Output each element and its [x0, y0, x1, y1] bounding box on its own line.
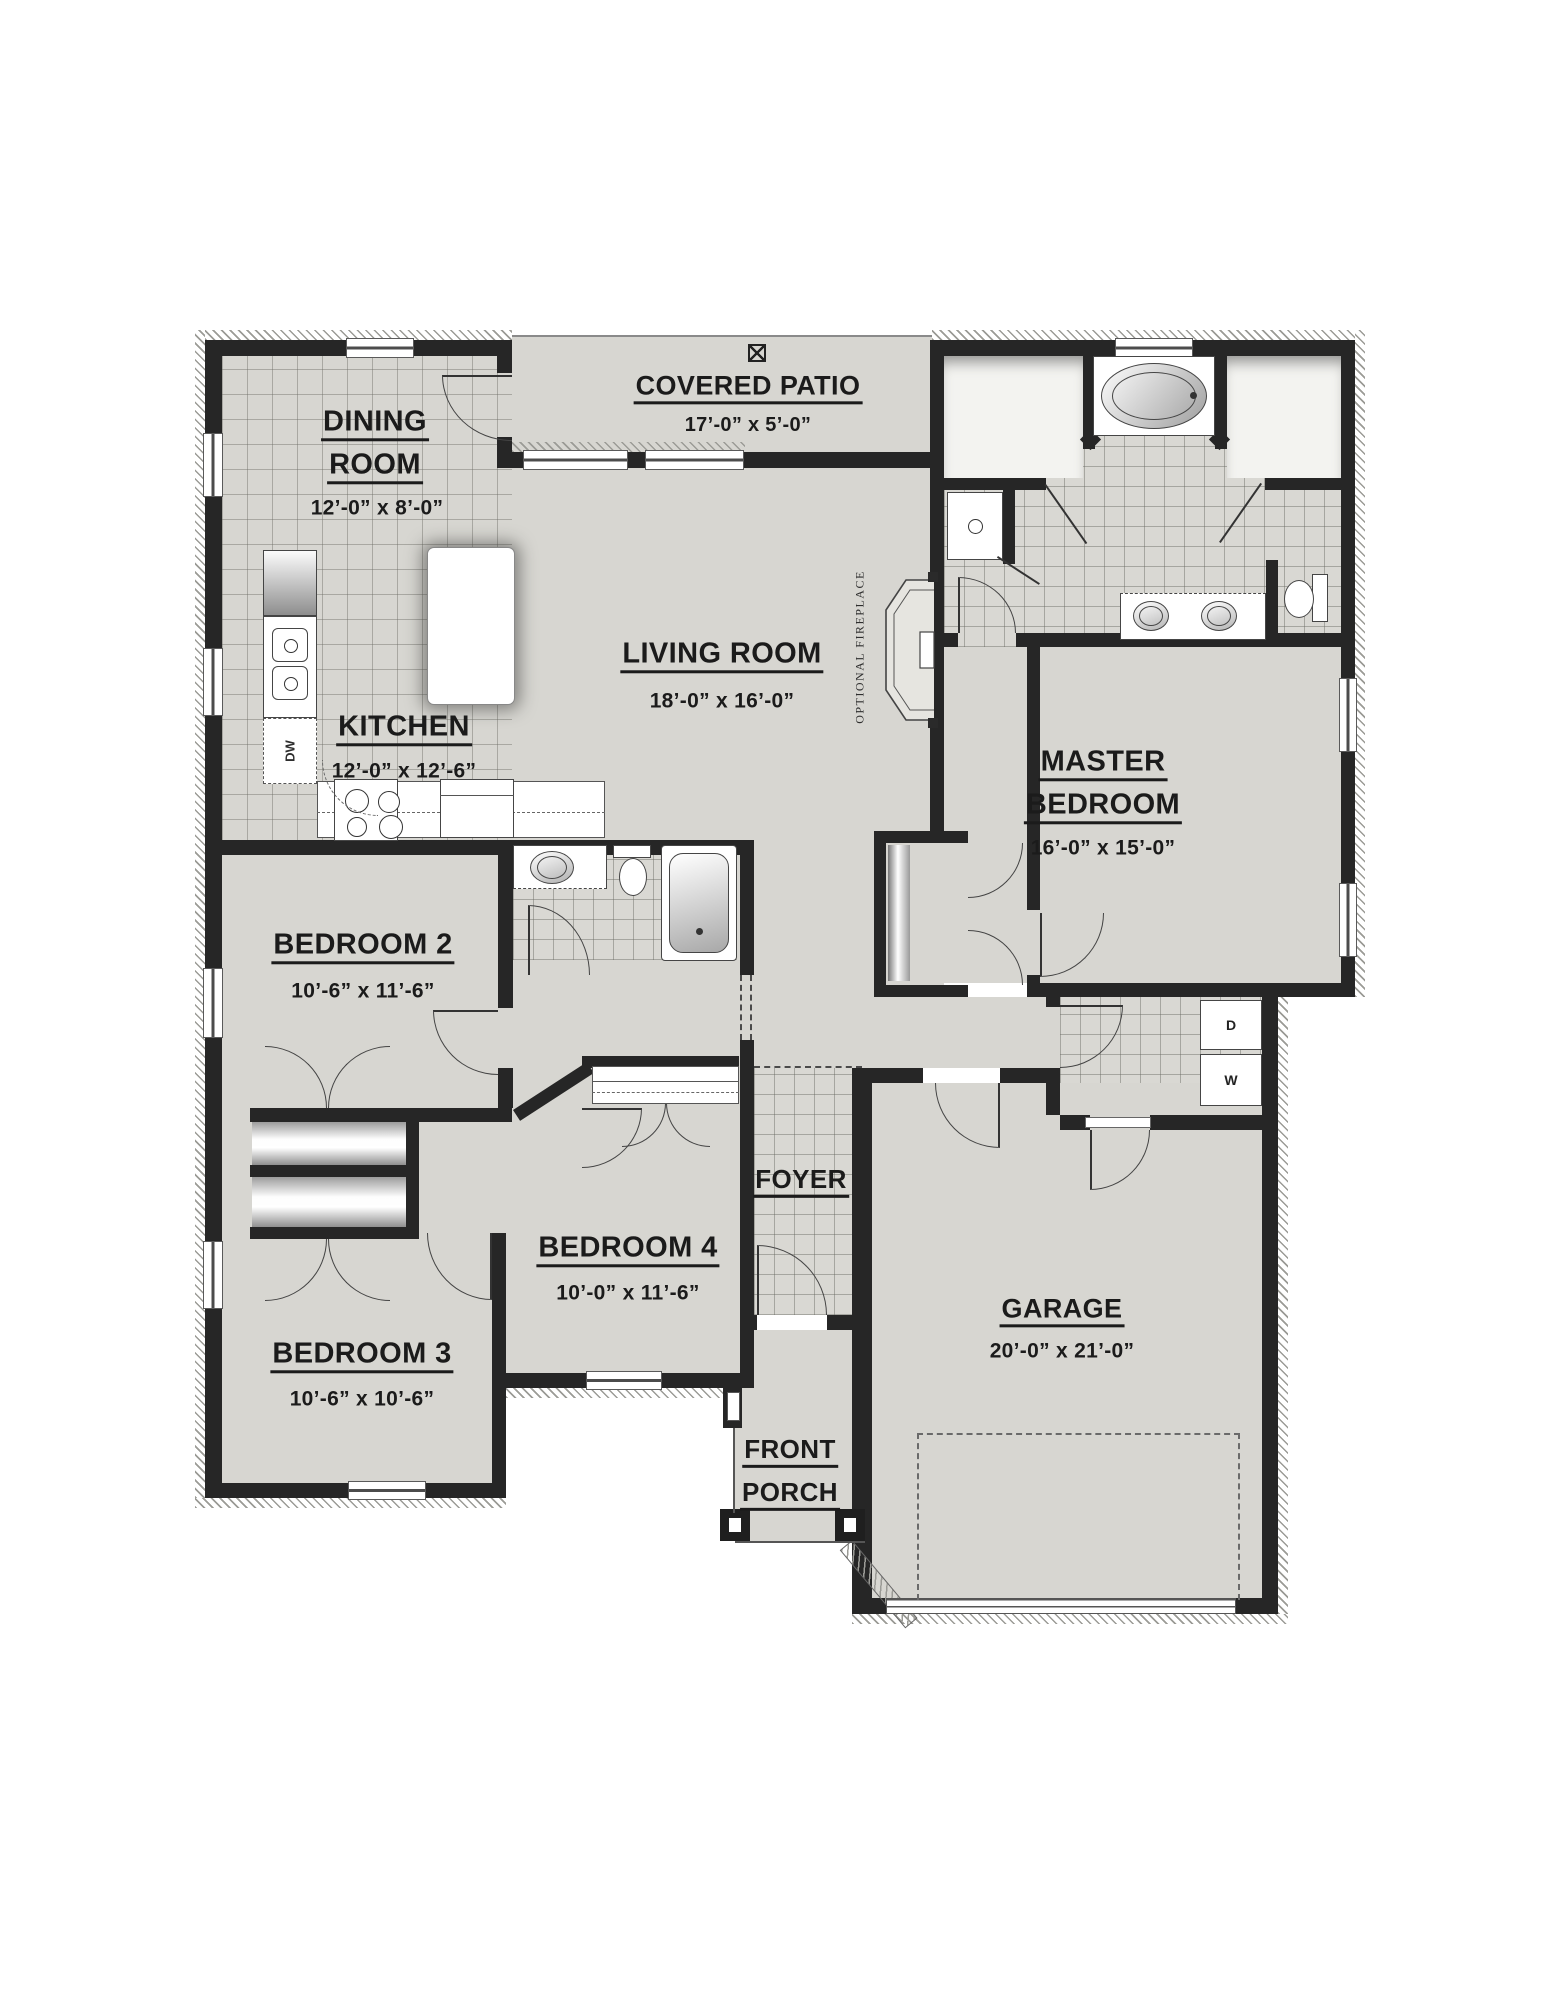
fireplace-bay	[876, 570, 940, 730]
wall	[944, 633, 958, 647]
garage-door	[886, 1598, 1236, 1614]
room-dims-garage: 20’-0” x 21’-0”	[990, 1335, 1135, 1362]
wall	[874, 985, 968, 997]
window	[523, 450, 628, 470]
window	[645, 450, 744, 470]
wall	[874, 831, 886, 997]
closet-shelf-line	[592, 1081, 739, 1082]
room-label-bedroom2: BEDROOM 2	[271, 929, 454, 964]
tub-drain	[696, 928, 703, 935]
room-dims-bedroom3: 10’-6” x 10’-6”	[290, 1383, 435, 1410]
wall	[827, 1315, 872, 1330]
room-dims-bedroom2: 10’-6” x 11’-6”	[291, 975, 434, 1002]
porch-edge	[733, 1428, 735, 1513]
wall	[1046, 1068, 1060, 1115]
window	[203, 968, 223, 1038]
wall	[498, 1068, 513, 1108]
room-label-master-2: BEDROOM	[1024, 789, 1182, 824]
closet-bedroom2	[252, 1122, 406, 1165]
room-label-bedroom3: BEDROOM 3	[270, 1338, 453, 1373]
room-label-foyer: FOYER	[753, 1166, 849, 1198]
wall	[1040, 983, 1262, 997]
toilet-tank	[1312, 574, 1328, 622]
wall	[250, 1227, 406, 1239]
wall	[742, 1315, 757, 1330]
wall	[1266, 560, 1278, 647]
kitchen-cabinet	[440, 779, 514, 838]
wall	[1262, 983, 1355, 997]
bedroom3-dims: 10’-6” x 10’-6”	[290, 1388, 435, 1410]
wall	[492, 1233, 506, 1498]
closet-bedroom3	[252, 1177, 406, 1227]
wall	[205, 340, 222, 1498]
wall	[740, 840, 754, 975]
floor-plan: DINING ROOM 12’-0” x 8’-0” COVERED PATIO…	[0, 0, 1562, 2000]
room-label-bedroom4: BEDROOM 4	[536, 1232, 719, 1267]
room-dims-master: 16’-0” x 15’-0”	[1031, 832, 1176, 859]
room-label-living: LIVING ROOM	[620, 638, 823, 673]
closet-bedroom4-shelf	[592, 1066, 739, 1104]
room-dims-bedroom4: 10’-0” x 11’-6”	[556, 1277, 699, 1304]
floor-hall-strip	[944, 997, 1060, 1068]
cased-opening-dashed	[740, 975, 742, 1040]
closet-rod-dashed	[592, 1092, 739, 1093]
bedroom4-name: BEDROOM 4	[536, 1232, 719, 1267]
shower-drain-icon	[968, 519, 983, 534]
sink-inner	[537, 856, 567, 879]
patio-name: COVERED PATIO	[634, 371, 863, 404]
window	[586, 1371, 662, 1390]
dining-name-2: ROOM	[327, 449, 423, 484]
bedroom3-name: BEDROOM 3	[270, 1338, 453, 1373]
porch-column	[835, 1509, 865, 1541]
tub-faucet	[1190, 392, 1197, 399]
sink-inner	[1207, 606, 1231, 626]
kitchen-name: KITCHEN	[336, 711, 472, 746]
window	[346, 338, 414, 358]
window	[348, 1481, 426, 1500]
window	[203, 433, 223, 497]
wall	[250, 1108, 512, 1122]
sink-drain	[284, 677, 298, 691]
garage-door-track-dashed	[917, 1433, 1240, 1600]
garage-name: GARAGE	[1000, 1294, 1125, 1327]
room-label-master-1: MASTER	[1039, 746, 1168, 781]
hall-tub	[669, 853, 729, 953]
porch-name-2: PORCH	[740, 1479, 840, 1511]
washer-label: W	[1224, 1072, 1237, 1088]
dishwasher-label: DW	[283, 740, 298, 762]
cased-opening-dashed	[750, 975, 752, 1040]
burner	[379, 815, 403, 839]
window	[1339, 678, 1357, 752]
room-label-garage: GARAGE	[1000, 1294, 1125, 1327]
room-label-dining-1: DINING	[321, 406, 429, 441]
porch-edge	[735, 1541, 865, 1543]
wall	[1262, 997, 1278, 1612]
patio-roof-edge	[512, 335, 932, 337]
wall	[852, 1068, 923, 1083]
kitchen-island	[427, 547, 515, 705]
ceiling-box-icon	[748, 344, 766, 362]
room-label-porch-2: PORCH	[740, 1479, 840, 1511]
living-name: LIVING ROOM	[620, 638, 823, 673]
wall	[498, 855, 513, 1008]
room-dims-kitchen: 12’-0” x 12’-6”	[332, 755, 477, 782]
room-label-dining-2: ROOM	[327, 449, 423, 484]
closet-rod	[888, 845, 910, 981]
wall	[1027, 975, 1040, 997]
window	[203, 1241, 223, 1309]
wall	[944, 478, 1046, 490]
sink-inner	[1139, 606, 1163, 626]
kitchen-dims: 12’-0” x 12’-6”	[332, 760, 477, 782]
dining-dims: 12’-0” x 8’-0”	[311, 497, 444, 519]
burner	[347, 817, 367, 837]
room-label-patio: COVERED PATIO	[634, 371, 863, 404]
wall	[1150, 1115, 1262, 1130]
window	[1339, 883, 1357, 957]
toilet-tank	[613, 845, 651, 858]
room-label-porch-1: FRONT	[742, 1436, 838, 1468]
toilet-bowl	[1284, 580, 1314, 618]
fireplace-annotation: OPTIONAL FIREPLACE	[853, 570, 868, 724]
room-dims-dining: 12’-0” x 8’-0”	[311, 492, 444, 519]
bedroom2-dims: 10’-6” x 11’-6”	[291, 980, 434, 1002]
wall	[874, 831, 968, 843]
window	[1115, 338, 1193, 358]
wall	[1265, 478, 1341, 490]
foyer-name: FOYER	[753, 1166, 849, 1198]
wall	[406, 1108, 419, 1239]
laundry-garage-step	[1085, 1117, 1151, 1128]
master-name-1: MASTER	[1039, 746, 1168, 781]
wall	[1003, 488, 1015, 564]
refrigerator	[263, 550, 317, 616]
floor-master-closet-left	[944, 356, 1083, 478]
wall	[1046, 997, 1060, 1007]
cabinet-line	[440, 795, 514, 796]
burner	[378, 791, 400, 813]
hatch-garage-bottom	[852, 1614, 1288, 1624]
porch-column	[720, 1509, 750, 1541]
patio-dims: 17’-0” x 5’-0”	[685, 415, 812, 436]
wall	[740, 1040, 754, 1388]
porch-name-1: FRONT	[742, 1436, 838, 1468]
bedroom2-name: BEDROOM 2	[271, 929, 454, 964]
room-label-kitchen: KITCHEN	[336, 711, 472, 746]
garage-dims: 20’-0” x 21’-0”	[990, 1340, 1135, 1362]
window	[203, 648, 223, 716]
dining-name-1: DINING	[321, 406, 429, 441]
porch-sidelite-window	[727, 1392, 740, 1421]
bedroom4-dims: 10’-0” x 11’-6”	[556, 1282, 699, 1304]
floor-master-closet-right	[1227, 356, 1341, 478]
master-tub-inner	[1112, 372, 1196, 420]
room-dims-patio: 17’-0” x 5’-0”	[685, 410, 812, 436]
foyer-opening-dashed	[754, 1066, 862, 1068]
dryer-label: D	[1226, 1017, 1236, 1033]
sink-drain	[284, 639, 298, 653]
living-dims: 18’-0” x 16’-0”	[650, 690, 795, 712]
wall	[497, 356, 512, 373]
master-name-2: BEDROOM	[1024, 789, 1182, 824]
hatch-right-lower	[1278, 997, 1288, 1614]
master-dims: 16’-0” x 15’-0”	[1031, 837, 1176, 859]
hatch-left	[195, 330, 205, 1498]
room-dims-living: 18’-0” x 16’-0”	[650, 685, 795, 712]
toilet-bowl	[619, 858, 647, 896]
wall	[250, 1165, 406, 1177]
wall	[1236, 1598, 1278, 1614]
